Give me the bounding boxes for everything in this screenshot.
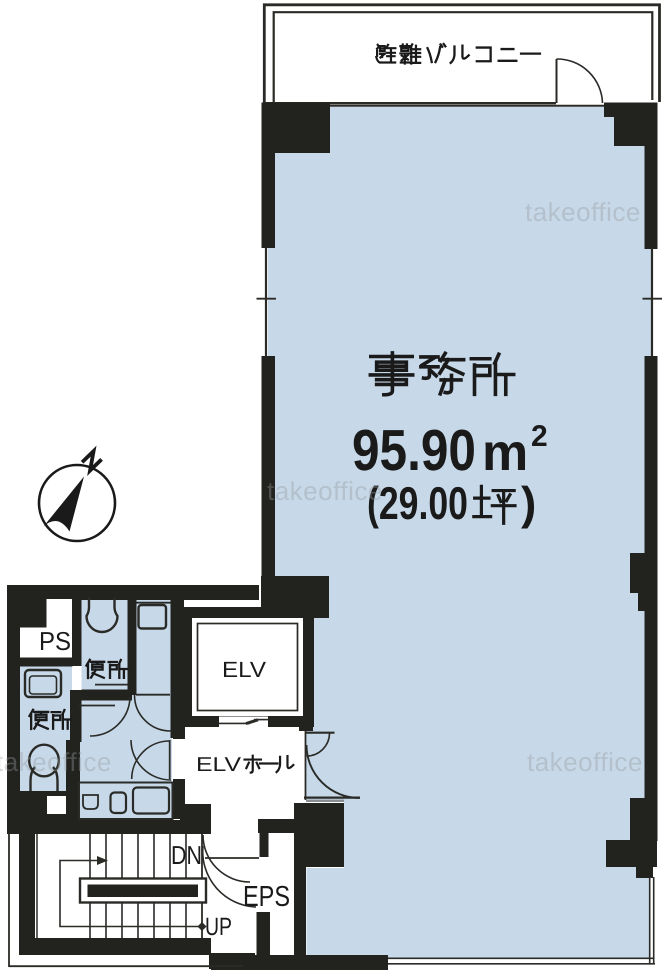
svg-text:95.90: 95.90 bbox=[352, 418, 476, 483]
svg-text:EPS: EPS bbox=[243, 881, 290, 913]
svg-text:2: 2 bbox=[531, 420, 548, 453]
svg-text:takeoffice: takeoffice bbox=[527, 747, 643, 777]
svg-text:ELV: ELV bbox=[222, 657, 266, 682]
svg-text:DN: DN bbox=[171, 840, 202, 870]
svg-text:m: m bbox=[482, 424, 528, 482]
svg-text:takeoffice: takeoffice bbox=[525, 197, 641, 227]
svg-text:PS: PS bbox=[39, 626, 71, 656]
svg-text:takeoffice: takeoffice bbox=[267, 476, 383, 506]
svg-text:ELV: ELV bbox=[196, 754, 242, 776]
svg-text:UP: UP bbox=[205, 913, 232, 941]
svg-text:): ) bbox=[521, 477, 536, 529]
svg-text:takeoffice: takeoffice bbox=[0, 747, 112, 777]
